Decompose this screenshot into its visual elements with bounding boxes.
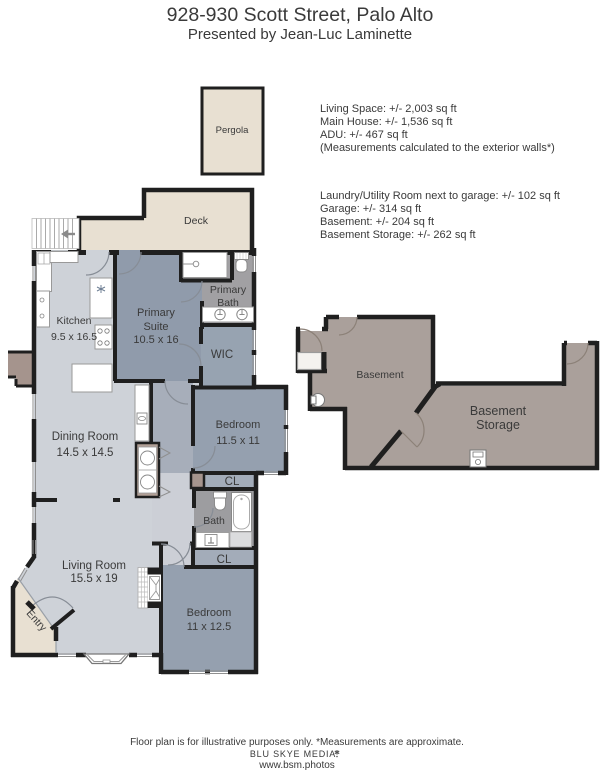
svg-text:Bath: Bath [203, 515, 225, 527]
svg-text:Living Space: +/- 2,003 sq ft: Living Space: +/- 2,003 sq ft [320, 103, 457, 115]
svg-text:Dining Room: Dining Room [52, 431, 118, 443]
svg-text:Kitchen: Kitchen [56, 315, 91, 327]
svg-text:www.bsm.photos: www.bsm.photos [258, 760, 335, 771]
svg-text:Primary: Primary [137, 307, 175, 319]
svg-text:Presented by Jean-Luc Laminett: Presented by Jean-Luc Laminette [188, 26, 412, 43]
svg-text:Pergola: Pergola [216, 125, 249, 136]
svg-text:Garage: +/- 314 sq ft: Garage: +/- 314 sq ft [320, 203, 421, 215]
svg-text:Basement: Basement [470, 404, 527, 418]
svg-text:Laundry/Utility Room next to g: Laundry/Utility Room next to garage: +/-… [320, 190, 560, 202]
svg-text:Deck: Deck [184, 215, 209, 227]
svg-text:928-930 Scott Street, Palo Alt: 928-930 Scott Street, Palo Alto [167, 4, 434, 26]
svg-text:Living Room: Living Room [62, 560, 126, 572]
svg-text:Basement: Basement [356, 369, 403, 381]
svg-text:BLU SKYE MEDIA: BLU SKYE MEDIA [250, 749, 336, 759]
svg-text:Basement Storage: +/- 262 sq f: Basement Storage: +/- 262 sq ft [320, 229, 476, 241]
svg-text:(Measurements calculated to th: (Measurements calculated to the exterior… [320, 142, 555, 154]
svg-text:9.5 x 16.5: 9.5 x 16.5 [51, 331, 97, 343]
svg-text:Storage: Storage [476, 418, 520, 432]
svg-text:10.5 x 16: 10.5 x 16 [133, 334, 178, 346]
svg-text:Bedroom: Bedroom [216, 419, 261, 431]
svg-text:15.5 x 19: 15.5 x 19 [70, 573, 117, 585]
svg-text:Floor plan is for illustrative: Floor plan is for illustrative purposes … [130, 737, 464, 748]
svg-text:Primary: Primary [210, 284, 247, 296]
svg-text:Main House: +/- 1,536 sq ft: Main House: +/- 1,536 sq ft [320, 116, 452, 128]
svg-text:CL: CL [217, 554, 232, 566]
svg-text:11 x 12.5: 11 x 12.5 [187, 621, 231, 633]
svg-text:Basement: +/- 204 sq ft: Basement: +/- 204 sq ft [320, 216, 434, 228]
svg-text:CL: CL [225, 476, 240, 488]
svg-text:14.5 x 14.5: 14.5 x 14.5 [57, 447, 114, 459]
svg-text:11.5 x 11: 11.5 x 11 [216, 435, 260, 447]
svg-text:WIC: WIC [211, 349, 233, 361]
svg-text:Bedroom: Bedroom [187, 607, 232, 619]
svg-text:ADU: +/- 467 sq ft: ADU: +/- 467 sq ft [320, 129, 408, 141]
svg-text:Suite: Suite [143, 321, 168, 333]
svg-text:Bath: Bath [217, 297, 239, 309]
